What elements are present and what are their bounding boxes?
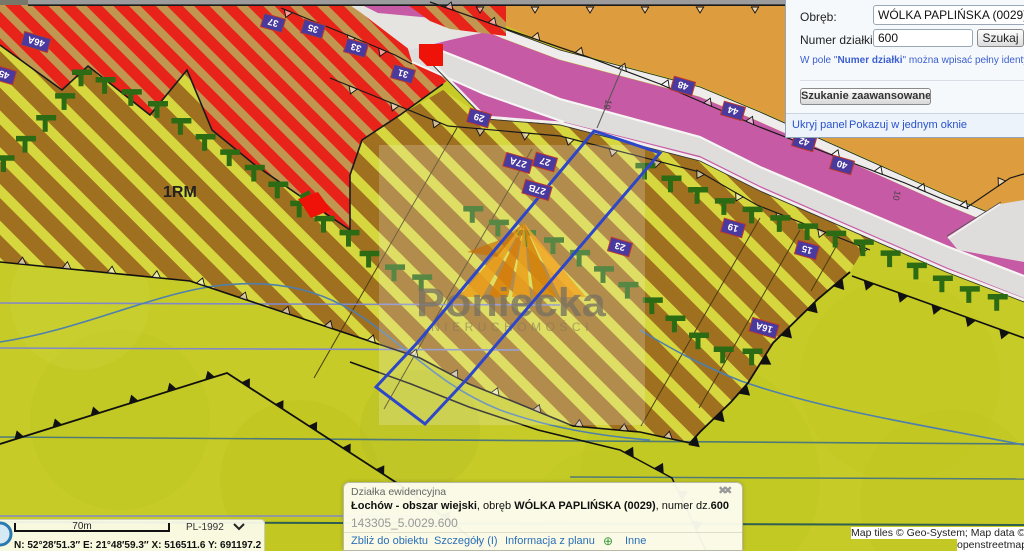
svg-text:N: 52°28′51.3″ E: 21°48′59.3″: N: 52°28′51.3″ E: 21°48′59.3″ X: 516511.… (14, 540, 262, 551)
svg-text:1RM: 1RM (163, 184, 197, 201)
svg-text:Poniecka: Poniecka (416, 279, 607, 324)
svg-text:70m: 70m (72, 521, 91, 532)
svg-text:PL-1992: PL-1992 (186, 522, 224, 533)
